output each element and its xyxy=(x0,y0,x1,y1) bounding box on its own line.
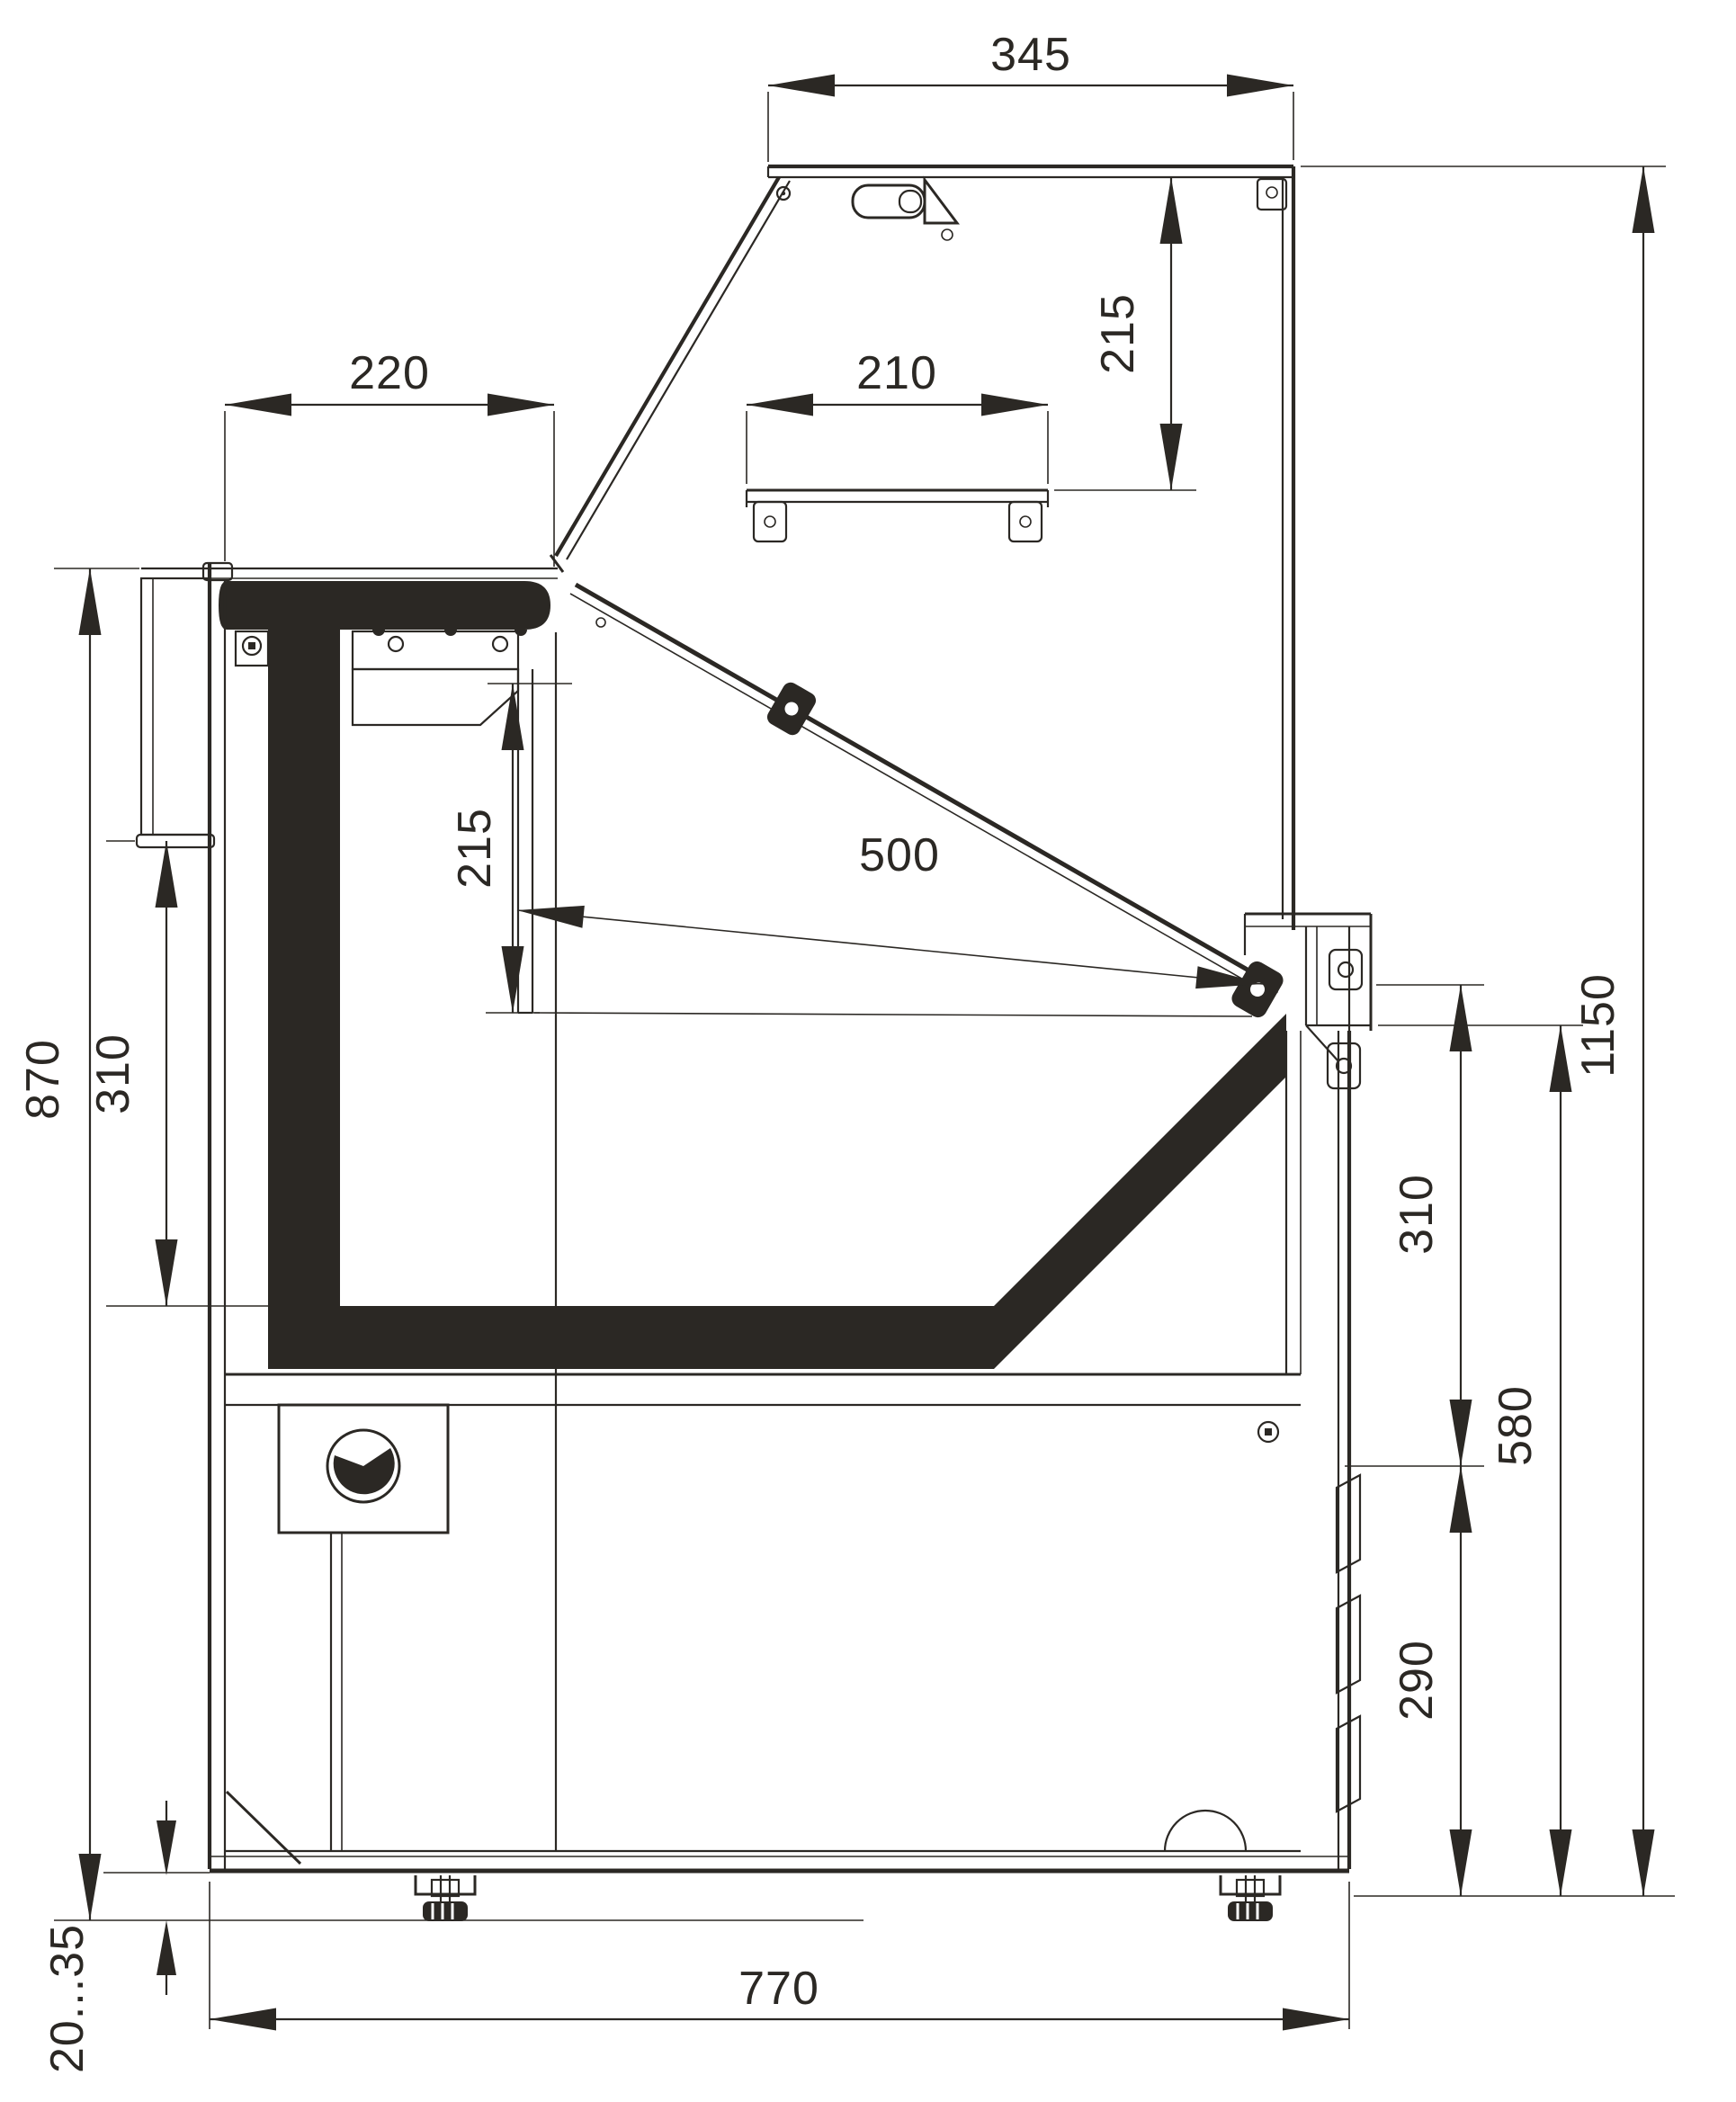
worktop-core xyxy=(219,581,550,630)
shelf-bracket-right-hole xyxy=(1020,516,1031,527)
sill-bracket xyxy=(1329,950,1362,989)
dim-louver-zone: 290 xyxy=(1345,1466,1484,1896)
dim-500-label: 500 xyxy=(859,829,940,881)
dim-770-label: 770 xyxy=(738,1963,819,2015)
tray-edge-line xyxy=(534,1013,1252,1016)
foot-right-knob xyxy=(1228,1901,1273,1921)
sill-bracket-screw xyxy=(1338,962,1353,977)
fan-housing-top xyxy=(353,631,518,669)
dim-870-label: 870 xyxy=(17,1039,69,1120)
foot-left-bracket xyxy=(416,1875,475,1894)
glass-outer-line xyxy=(576,585,1263,979)
service-front-panel-cap xyxy=(137,835,214,847)
dim-310right-label: 310 xyxy=(1391,1174,1443,1255)
dim-345-label: 345 xyxy=(990,29,1071,81)
dim-display-opening: 500 xyxy=(517,829,1263,984)
drain-dome xyxy=(1165,1811,1246,1851)
dim-215top-label: 215 xyxy=(1092,293,1144,374)
front-glass xyxy=(570,585,1286,1021)
shelf-bracket-left xyxy=(754,502,786,541)
drawing-canvas: 345 215 220 210 500 215 310 xyxy=(0,0,1736,2102)
dim-feet-range: 20...35 xyxy=(41,1801,210,2073)
dim-worktop-height: 870 xyxy=(17,568,864,1920)
flap-outer-line xyxy=(556,177,779,556)
logo-mark xyxy=(334,1448,395,1494)
dim-215mid-label: 215 xyxy=(449,808,501,889)
under-deck-frame xyxy=(225,1374,1301,1442)
insulation-column xyxy=(268,630,340,1313)
foot-left-knob xyxy=(423,1901,468,1921)
front-panel-bracket xyxy=(1328,1043,1360,1088)
fan-housing-screw-2 xyxy=(493,637,507,651)
lamp-bracket-screw xyxy=(942,229,953,240)
technical-drawing: 345 215 220 210 500 215 310 xyxy=(0,0,1736,2102)
dim-220-label: 220 xyxy=(349,347,430,399)
shelf-bracket-right xyxy=(1009,502,1042,541)
lamp-end-cap xyxy=(899,191,921,212)
glass-clamp-end xyxy=(1229,958,1286,1020)
glass-inner-line xyxy=(570,594,1257,988)
dim-mid-opening: 215 xyxy=(449,684,572,1013)
frame-screw-slot xyxy=(1265,1428,1272,1436)
dim-580-label: 580 xyxy=(1490,1385,1542,1466)
interior-shelf xyxy=(747,490,1048,541)
adjustable-foot-left xyxy=(416,1875,475,1921)
dim-left-opening: 310 xyxy=(87,841,268,1306)
corner-brace xyxy=(227,1792,300,1864)
dim-1150-label: 1150 xyxy=(1572,973,1624,1078)
dim-shelf-depth: 210 xyxy=(747,347,1048,484)
dim-front-upper: 310 xyxy=(1376,985,1484,1466)
dim-feet-arrow-bottom xyxy=(157,1920,176,1975)
dim-310left-label: 310 xyxy=(87,1033,139,1114)
worktop-corner-screw-slot xyxy=(248,642,255,649)
dim-front-height: 580 xyxy=(1378,1025,1583,1896)
lamp-assembly xyxy=(853,180,957,240)
dim-canopy-to-shelf: 215 xyxy=(1054,177,1196,490)
service-front-panel xyxy=(141,578,210,835)
fan-housing-body xyxy=(353,669,518,725)
lamp-bracket xyxy=(925,180,957,223)
dim-290-label: 290 xyxy=(1391,1640,1443,1721)
flap-hinge-pin xyxy=(782,192,785,195)
dim-overall-height: 1150 xyxy=(1301,166,1666,1896)
dim-feet-arrow-top xyxy=(157,1820,176,1875)
canopy xyxy=(768,166,1293,930)
dim-210-label: 210 xyxy=(856,347,937,399)
dim-canopy-depth: 345 xyxy=(768,29,1293,162)
glass-top-screw xyxy=(596,618,605,627)
foot-right-bracket xyxy=(1221,1875,1280,1894)
dim-500-line xyxy=(517,910,1263,984)
dim-worktop-depth: 220 xyxy=(225,347,554,567)
adjustable-foot-right xyxy=(1221,1875,1280,1921)
glass-clamp-mid xyxy=(765,679,819,738)
front-panel xyxy=(1286,1031,1360,1869)
dim-feet-label: 20...35 xyxy=(41,1924,94,2073)
dim-body-depth: 770 xyxy=(210,1882,1349,2029)
deck-horizontal xyxy=(268,1306,994,1369)
fan-housing-screw-1 xyxy=(389,637,403,651)
deck-riser-45deg xyxy=(994,1014,1286,1369)
flap-end-cap xyxy=(550,555,563,572)
canopy-bracket-hole xyxy=(1266,187,1277,198)
display-deck xyxy=(268,630,1286,1369)
shelf-bracket-left-hole xyxy=(765,516,775,527)
machine-compartment xyxy=(225,632,1301,1864)
worktop xyxy=(141,568,558,1013)
